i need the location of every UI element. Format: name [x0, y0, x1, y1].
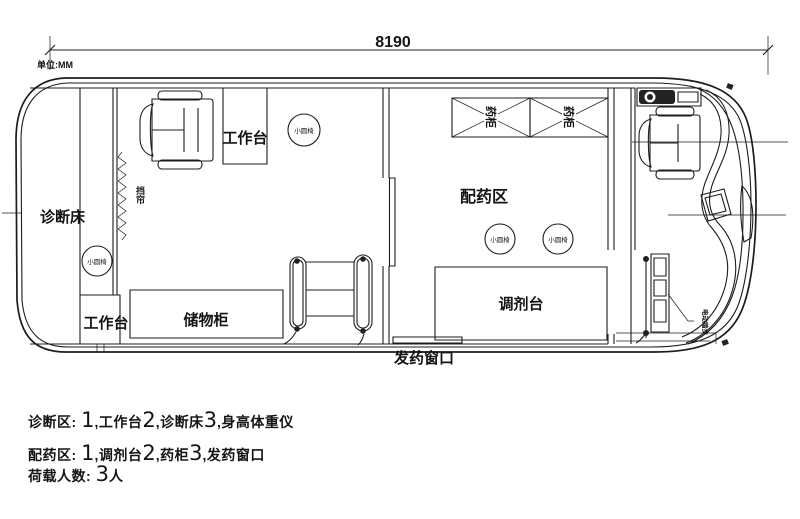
note-number: 1: [81, 408, 94, 432]
note-text: 荷载人数:: [28, 468, 96, 484]
dimension-value: 8190: [375, 34, 411, 51]
dispensing-window-label: 发药窗口: [393, 349, 454, 367]
diagnostic-bed: 诊断床: [40, 88, 86, 295]
note-text: 人: [109, 468, 124, 484]
note-number: 3: [189, 441, 202, 465]
workbench-top: 工作台: [222, 88, 267, 164]
medicine-cabinet-1-label: 药柜: [484, 106, 498, 128]
storage-cabinet-label: 储物柜: [183, 311, 228, 329]
round-stool-2-label: 小圆椅: [87, 257, 107, 266]
legend-notes: 诊断区: 1,工作台2,诊断床3,身高体重仪 配药区: 1,调剂台2,药柜3,发…: [28, 404, 448, 514]
overall-length-dimension: 8190 单位:MM: [37, 34, 773, 75]
pharmacy-area-label: 配药区: [460, 187, 508, 206]
round-stool-2: 小圆椅: [82, 246, 112, 276]
note-number: 2: [142, 441, 155, 465]
note-number: 3: [204, 408, 217, 432]
storage-cabinet: 储物柜: [130, 290, 283, 338]
privacy-curtain: 挡帘: [118, 152, 145, 240]
note-number: 2: [142, 408, 155, 432]
inner-partition: [113, 88, 117, 295]
note-text: ,身高体重仪: [217, 414, 294, 430]
pharmacy-cab-wall: [608, 88, 614, 344]
pharmacy-room: 药柜 药柜 配药区 小圆椅 小圆椅 调剂台 发药窗口: [393, 88, 614, 367]
note-text: ,诊断床: [156, 414, 204, 430]
note-text: ,工作台: [94, 414, 142, 430]
medicine-cabinet-2-label: 药柜: [562, 106, 576, 128]
cad-floor-plan-page: 8190 单位:MM 诊断床 挡帘: [0, 0, 800, 519]
note-number: 3: [96, 462, 109, 486]
dispensing-table: 调剂台: [435, 267, 607, 340]
cab-area: 电动踏步: [616, 83, 788, 346]
dashboard-console: [682, 83, 753, 346]
office-chair: [140, 91, 213, 169]
dispensing-window: 发药窗口: [393, 337, 462, 367]
note-text: ,药柜: [156, 447, 189, 463]
round-stool-4: 小圆椅: [543, 224, 573, 254]
round-stool-4-label: 小圆椅: [548, 235, 568, 244]
round-stool-1-label: 小圆椅: [294, 126, 314, 135]
vehicle-body-outline: [2, 78, 756, 352]
round-stool-3-label: 小圆椅: [490, 235, 510, 244]
diagnosis-room: 诊断床 挡帘 工作台 小圆椅 小圆椅: [40, 88, 372, 345]
note-text: ,发药窗口: [202, 447, 264, 463]
floor-plan-drawing: 8190 单位:MM 诊断床 挡帘: [0, 0, 800, 400]
medicine-cabinet-2: 药柜: [530, 98, 608, 137]
workbench-bottom-label: 工作台: [83, 314, 128, 332]
round-stool-1: 小圆椅: [288, 114, 320, 146]
medicine-cabinet-1: 药柜: [452, 98, 530, 137]
interior-walls: [30, 88, 635, 344]
note-diagnosis-area: 诊断区: 1,工作台2,诊断床3,身高体重仪: [28, 408, 294, 432]
workbench-top-label: 工作台: [222, 129, 267, 147]
note-capacity: 荷载人数: 3人: [28, 462, 123, 486]
note-text: 诊断区:: [28, 414, 81, 430]
entry-steps: [284, 255, 372, 345]
partition-wall: [383, 88, 395, 344]
diagnostic-bed-label: 诊断床: [40, 208, 86, 226]
curtain-label: 挡帘: [135, 185, 145, 205]
boarding-step-label: 电动踏步: [701, 309, 710, 336]
dispensing-table-label: 调剂台: [498, 295, 543, 313]
driver-seat: [639, 107, 700, 179]
cab-overhead-unit: [637, 88, 701, 106]
note-text: ,调剂台: [94, 447, 142, 463]
workbench-bottom: 工作台: [80, 295, 129, 344]
dimension-unit: 单位:MM: [37, 59, 73, 70]
note-text: 配药区:: [28, 447, 81, 463]
round-stool-3: 小圆椅: [485, 224, 515, 254]
